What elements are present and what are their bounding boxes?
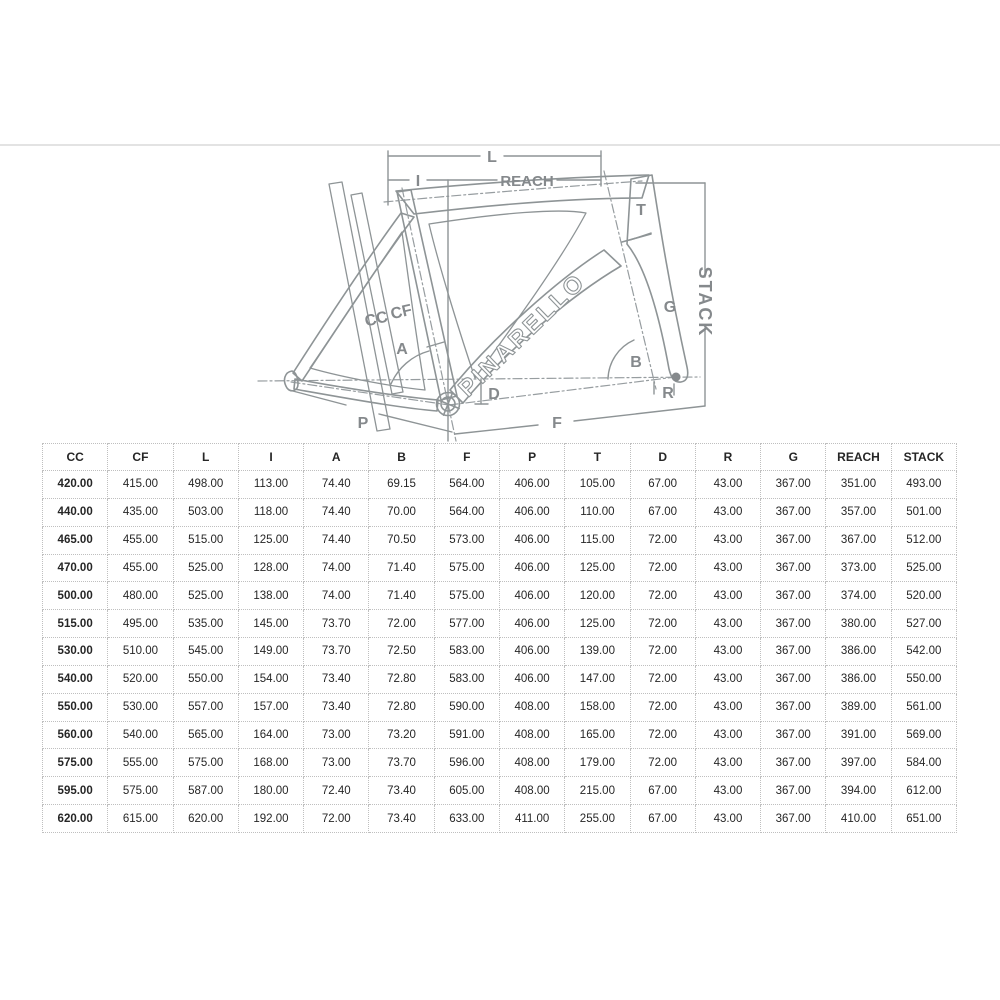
front-axle [672, 373, 681, 382]
value-cell: 73.70 [304, 610, 369, 638]
value-cell: 125.00 [565, 554, 630, 582]
value-cell: 573.00 [434, 526, 499, 554]
value-cell: 43.00 [695, 777, 760, 805]
value-cell: 406.00 [499, 665, 564, 693]
value-cell: 157.00 [238, 693, 303, 721]
value-cell: 410.00 [826, 805, 891, 833]
value-cell: 43.00 [695, 526, 760, 554]
value-cell: 43.00 [695, 721, 760, 749]
value-cell: 367.00 [761, 526, 826, 554]
value-cell: 192.00 [238, 805, 303, 833]
table-row: 515.00495.00535.00145.0073.7072.00577.00… [43, 610, 957, 638]
size-cell: 560.00 [43, 721, 108, 749]
value-cell: 587.00 [173, 777, 238, 805]
value-cell: 493.00 [891, 471, 956, 499]
value-cell: 73.40 [304, 665, 369, 693]
value-cell: 406.00 [499, 526, 564, 554]
value-cell: 394.00 [826, 777, 891, 805]
dimension-label-stack: STACK [695, 267, 715, 338]
value-cell: 73.40 [369, 805, 434, 833]
table-row: 465.00455.00515.00125.0074.4070.50573.00… [43, 526, 957, 554]
value-cell: 575.00 [173, 749, 238, 777]
value-cell: 498.00 [173, 471, 238, 499]
table-row: 550.00530.00557.00157.0073.4072.80590.00… [43, 693, 957, 721]
value-cell: 115.00 [565, 526, 630, 554]
value-cell: 569.00 [891, 721, 956, 749]
value-cell: 138.00 [238, 582, 303, 610]
value-cell: 520.00 [891, 582, 956, 610]
value-cell: 525.00 [173, 582, 238, 610]
value-cell: 577.00 [434, 610, 499, 638]
size-cell: 515.00 [43, 610, 108, 638]
value-cell: 386.00 [826, 638, 891, 666]
chain-stays [294, 379, 438, 411]
size-cell: 420.00 [43, 471, 108, 499]
value-cell: 480.00 [108, 582, 173, 610]
value-cell: 154.00 [238, 665, 303, 693]
value-cell: 43.00 [695, 582, 760, 610]
value-cell: 495.00 [108, 610, 173, 638]
dimension-label-l: L [487, 149, 497, 166]
value-cell: 72.00 [630, 610, 695, 638]
bike-frame-drawing [285, 175, 688, 431]
column-header: P [499, 444, 564, 471]
dimension-label-p: P [358, 415, 369, 432]
value-cell: 408.00 [499, 693, 564, 721]
value-cell: 128.00 [238, 554, 303, 582]
value-cell: 120.00 [565, 582, 630, 610]
value-cell: 575.00 [434, 554, 499, 582]
column-header: L [173, 444, 238, 471]
value-cell: 583.00 [434, 665, 499, 693]
value-cell: 408.00 [499, 777, 564, 805]
value-cell: 43.00 [695, 665, 760, 693]
value-cell: 620.00 [173, 805, 238, 833]
value-cell: 43.00 [695, 693, 760, 721]
value-cell: 72.00 [630, 638, 695, 666]
column-header: F [434, 444, 499, 471]
dimension-label-g: G [664, 299, 676, 316]
dimension-label-d: D [488, 386, 500, 403]
dimension-label-b: B [630, 354, 642, 371]
value-cell: 591.00 [434, 721, 499, 749]
value-cell: 389.00 [826, 693, 891, 721]
value-cell: 455.00 [108, 526, 173, 554]
value-cell: 73.70 [369, 749, 434, 777]
value-cell: 179.00 [565, 749, 630, 777]
value-cell: 72.00 [630, 554, 695, 582]
value-cell: 43.00 [695, 610, 760, 638]
table-row: 420.00415.00498.00113.0074.4069.15564.00… [43, 471, 957, 499]
size-cell: 470.00 [43, 554, 108, 582]
table-row: 440.00435.00503.00118.0074.4070.00564.00… [43, 498, 957, 526]
value-cell: 545.00 [173, 638, 238, 666]
value-cell: 70.00 [369, 498, 434, 526]
value-cell: 605.00 [434, 777, 499, 805]
size-cell: 620.00 [43, 805, 108, 833]
value-cell: 72.00 [630, 526, 695, 554]
value-cell: 43.00 [695, 638, 760, 666]
value-cell: 520.00 [108, 665, 173, 693]
table-row: 540.00520.00550.00154.0073.4072.80583.00… [43, 665, 957, 693]
value-cell: 367.00 [761, 693, 826, 721]
column-header: CF [108, 444, 173, 471]
column-header: D [630, 444, 695, 471]
size-cell: 465.00 [43, 526, 108, 554]
value-cell: 406.00 [499, 582, 564, 610]
value-cell: 386.00 [826, 665, 891, 693]
value-cell: 72.80 [369, 665, 434, 693]
value-cell: 411.00 [499, 805, 564, 833]
frame-geometry-diagram: PINARELLO [0, 0, 1000, 460]
column-header: REACH [826, 444, 891, 471]
value-cell: 583.00 [434, 638, 499, 666]
value-cell: 557.00 [173, 693, 238, 721]
value-cell: 391.00 [826, 721, 891, 749]
value-cell: 380.00 [826, 610, 891, 638]
column-header: A [304, 444, 369, 471]
dimension-label-f: F [552, 415, 562, 432]
value-cell: 69.15 [369, 471, 434, 499]
value-cell: 71.40 [369, 554, 434, 582]
dimension-label-i: I [416, 173, 420, 190]
value-cell: 512.00 [891, 526, 956, 554]
value-cell: 651.00 [891, 805, 956, 833]
value-cell: 406.00 [499, 554, 564, 582]
value-cell: 70.50 [369, 526, 434, 554]
value-cell: 367.00 [761, 665, 826, 693]
column-header: R [695, 444, 760, 471]
value-cell: 73.40 [369, 777, 434, 805]
size-cell: 595.00 [43, 777, 108, 805]
value-cell: 357.00 [826, 498, 891, 526]
value-cell: 561.00 [891, 693, 956, 721]
value-cell: 72.00 [304, 805, 369, 833]
table-row: 595.00575.00587.00180.0072.4073.40605.00… [43, 777, 957, 805]
value-cell: 71.40 [369, 582, 434, 610]
value-cell: 501.00 [891, 498, 956, 526]
value-cell: 164.00 [238, 721, 303, 749]
value-cell: 74.40 [304, 498, 369, 526]
value-cell: 125.00 [565, 610, 630, 638]
value-cell: 67.00 [630, 498, 695, 526]
value-cell: 180.00 [238, 777, 303, 805]
column-header: B [369, 444, 434, 471]
value-cell: 149.00 [238, 638, 303, 666]
value-cell: 535.00 [173, 610, 238, 638]
value-cell: 351.00 [826, 471, 891, 499]
value-cell: 525.00 [173, 554, 238, 582]
table-row: 470.00455.00525.00128.0074.0071.40575.00… [43, 554, 957, 582]
value-cell: 72.00 [369, 610, 434, 638]
value-cell: 575.00 [108, 777, 173, 805]
value-cell: 43.00 [695, 749, 760, 777]
dimension-label-cf: CF [389, 302, 414, 323]
column-header: STACK [891, 444, 956, 471]
value-cell: 67.00 [630, 805, 695, 833]
value-cell: 110.00 [565, 498, 630, 526]
value-cell: 406.00 [499, 610, 564, 638]
value-cell: 105.00 [565, 471, 630, 499]
value-cell: 113.00 [238, 471, 303, 499]
value-cell: 72.00 [630, 749, 695, 777]
value-cell: 74.40 [304, 471, 369, 499]
column-header: CC [43, 444, 108, 471]
value-cell: 367.00 [761, 749, 826, 777]
geometry-table: CCCFLIABFPTDRGREACHSTACK 420.00415.00498… [42, 443, 957, 833]
value-cell: 72.00 [630, 665, 695, 693]
size-cell: 540.00 [43, 665, 108, 693]
table-row: 530.00510.00545.00149.0073.7072.50583.00… [43, 638, 957, 666]
value-cell: 408.00 [499, 721, 564, 749]
value-cell: 542.00 [891, 638, 956, 666]
value-cell: 596.00 [434, 749, 499, 777]
value-cell: 43.00 [695, 471, 760, 499]
column-header: I [238, 444, 303, 471]
value-cell: 158.00 [565, 693, 630, 721]
value-cell: 139.00 [565, 638, 630, 666]
dimension-label-reach: REACH [500, 173, 553, 190]
value-cell: 527.00 [891, 610, 956, 638]
value-cell: 72.50 [369, 638, 434, 666]
value-cell: 550.00 [891, 665, 956, 693]
dimension-label-t: T [636, 202, 646, 219]
value-cell: 406.00 [499, 471, 564, 499]
value-cell: 564.00 [434, 498, 499, 526]
value-cell: 74.00 [304, 554, 369, 582]
value-cell: 584.00 [891, 749, 956, 777]
value-cell: 73.20 [369, 721, 434, 749]
value-cell: 43.00 [695, 554, 760, 582]
size-cell: 575.00 [43, 749, 108, 777]
value-cell: 503.00 [173, 498, 238, 526]
value-cell: 367.00 [761, 471, 826, 499]
value-cell: 367.00 [761, 554, 826, 582]
value-cell: 550.00 [173, 665, 238, 693]
value-cell: 530.00 [108, 693, 173, 721]
value-cell: 510.00 [108, 638, 173, 666]
value-cell: 215.00 [565, 777, 630, 805]
value-cell: 406.00 [499, 638, 564, 666]
value-cell: 590.00 [434, 693, 499, 721]
value-cell: 72.00 [630, 721, 695, 749]
table-row: 500.00480.00525.00138.0074.0071.40575.00… [43, 582, 957, 610]
value-cell: 408.00 [499, 749, 564, 777]
size-cell: 500.00 [43, 582, 108, 610]
column-header: T [565, 444, 630, 471]
value-cell: 72.00 [630, 693, 695, 721]
value-cell: 72.00 [630, 582, 695, 610]
value-cell: 43.00 [695, 498, 760, 526]
value-cell: 415.00 [108, 471, 173, 499]
value-cell: 540.00 [108, 721, 173, 749]
value-cell: 374.00 [826, 582, 891, 610]
value-cell: 367.00 [761, 805, 826, 833]
value-cell: 397.00 [826, 749, 891, 777]
value-cell: 72.80 [369, 693, 434, 721]
header-row: CCCFLIABFPTDRGREACHSTACK [43, 444, 957, 471]
value-cell: 67.00 [630, 471, 695, 499]
value-cell: 406.00 [499, 498, 564, 526]
value-cell: 367.00 [761, 721, 826, 749]
value-cell: 564.00 [434, 471, 499, 499]
brand-logo: PINARELLO [453, 268, 591, 403]
value-cell: 367.00 [761, 610, 826, 638]
value-cell: 73.70 [304, 638, 369, 666]
table-row: 560.00540.00565.00164.0073.0073.20591.00… [43, 721, 957, 749]
center-lines [258, 171, 700, 441]
value-cell: 67.00 [630, 777, 695, 805]
value-cell: 455.00 [108, 554, 173, 582]
value-cell: 118.00 [238, 498, 303, 526]
value-cell: 165.00 [565, 721, 630, 749]
dimension-label-a: A [396, 341, 408, 358]
value-cell: 168.00 [238, 749, 303, 777]
value-cell: 633.00 [434, 805, 499, 833]
value-cell: 373.00 [826, 554, 891, 582]
value-cell: 73.00 [304, 749, 369, 777]
value-cell: 515.00 [173, 526, 238, 554]
value-cell: 74.00 [304, 582, 369, 610]
column-header: G [761, 444, 826, 471]
size-cell: 530.00 [43, 638, 108, 666]
value-cell: 125.00 [238, 526, 303, 554]
value-cell: 525.00 [891, 554, 956, 582]
value-cell: 72.40 [304, 777, 369, 805]
value-cell: 615.00 [108, 805, 173, 833]
value-cell: 367.00 [761, 638, 826, 666]
value-cell: 255.00 [565, 805, 630, 833]
value-cell: 43.00 [695, 805, 760, 833]
value-cell: 367.00 [761, 582, 826, 610]
table-row: 575.00555.00575.00168.0073.0073.70596.00… [43, 749, 957, 777]
value-cell: 74.40 [304, 526, 369, 554]
value-cell: 73.40 [304, 693, 369, 721]
value-cell: 555.00 [108, 749, 173, 777]
dimension-label-r: R [662, 385, 674, 402]
size-cell: 440.00 [43, 498, 108, 526]
value-cell: 565.00 [173, 721, 238, 749]
size-cell: 550.00 [43, 693, 108, 721]
value-cell: 367.00 [761, 498, 826, 526]
value-cell: 367.00 [826, 526, 891, 554]
value-cell: 612.00 [891, 777, 956, 805]
value-cell: 367.00 [761, 777, 826, 805]
value-cell: 73.00 [304, 721, 369, 749]
value-cell: 435.00 [108, 498, 173, 526]
table-row: 620.00615.00620.00192.0072.0073.40633.00… [43, 805, 957, 833]
value-cell: 145.00 [238, 610, 303, 638]
value-cell: 575.00 [434, 582, 499, 610]
value-cell: 147.00 [565, 665, 630, 693]
